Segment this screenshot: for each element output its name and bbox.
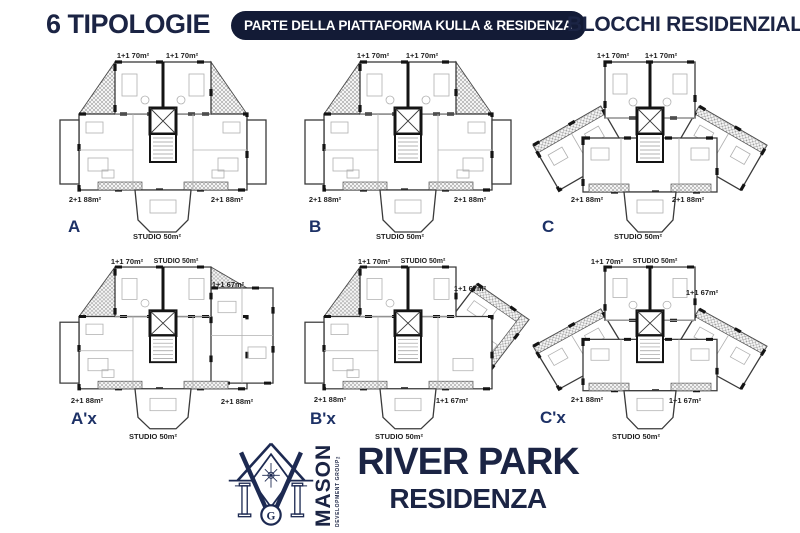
mason-logo-icon: G <box>227 440 315 530</box>
plan-cell-bx: 1+1 70m² STUDIO 50m² 1+1 67m² 2+1 88m² 1… <box>283 248 533 454</box>
unit-label-top-left: 1+1 70m² <box>357 51 389 60</box>
unit-label-bottom-left: 2+1 88m² <box>69 195 101 204</box>
unit-label-top-studio: STUDIO 50m² <box>401 258 446 265</box>
unit-label-bottom-right: 1+1 67m² <box>669 396 701 405</box>
plan-cell-ax: 1+1 70m² STUDIO 50m² 1+1 67m² 2+1 88m² 2… <box>38 248 288 454</box>
unit-label-top-left: 1+1 70m² <box>591 257 623 266</box>
unit-label-top-left: 1+1 70m² <box>111 257 143 266</box>
unit-label-top-studio: STUDIO 50m² <box>633 258 678 265</box>
unit-label-side-right: 1+1 67m² <box>212 280 244 289</box>
plan-cell-c: 1+1 70m² 1+1 70m² 2+1 88m² 2+1 88m² C ST… <box>525 42 775 248</box>
project-block: RIVER PARK RESIDENZA <box>352 443 584 513</box>
unit-label-bottom-left: 2+1 88m² <box>571 195 603 204</box>
page-title-right: BLOCCHI RESIDENZIALI <box>567 13 800 37</box>
plan-cell-a: 1+1 70m² 1+1 70m² 2+1 88m² 2+1 88m² A ST… <box>38 42 288 248</box>
unit-label-top-right: 1+1 70m² <box>406 51 438 60</box>
unit-label-studio: STUDIO 50m² <box>375 432 423 441</box>
unit-label-bottom-left: 2+1 88m² <box>71 396 103 405</box>
plan-letter: B'x <box>310 409 336 429</box>
unit-label-bottom-left: 2+1 88m² <box>314 395 346 404</box>
unit-label-bottom-right: 1+1 67m² <box>436 396 468 405</box>
logo-monogram: G <box>267 510 276 522</box>
subtitle-pill: PARTE DELLA PIATTAFORMA KULLA & RESIDENZ… <box>231 11 586 40</box>
unit-label-studio: STUDIO 50m² <box>129 432 177 441</box>
unit-label-side-right: 1+1 67m² <box>686 288 718 297</box>
unit-label-top-left: 1+1 70m² <box>117 51 149 60</box>
plan-cell-b: 1+1 70m² 1+1 70m² 2+1 88m² 2+1 88m² B ST… <box>283 42 533 248</box>
unit-label-bottom-right: 2+1 88m² <box>454 195 486 204</box>
project-subtitle: RESIDENZA <box>352 485 584 513</box>
unit-label-top-left: 1+1 70m² <box>597 51 629 60</box>
plan-letter: B <box>309 217 321 237</box>
unit-label-bottom-left: 2+1 88m² <box>571 395 603 404</box>
page-title-left: 6 TIPOLOGIE <box>46 9 210 40</box>
floorplan-c-drawing <box>525 42 775 248</box>
unit-label-side-right: 1+1 67m² <box>454 284 486 293</box>
plan-letter: A'x <box>71 409 97 429</box>
brand-block: MASON DEVELOPMENT GROUP™ <box>313 441 342 527</box>
plan-letter: C <box>542 217 554 237</box>
brand-name: MASON <box>313 441 334 527</box>
unit-label-bottom-right: 2+1 88m² <box>221 397 253 406</box>
unit-label-studio: STUDIO 50m² <box>376 232 424 241</box>
plan-cell-cx: 1+1 70m² STUDIO 50m² 1+1 67m² 2+1 88m² 1… <box>525 248 775 454</box>
unit-label-studio: STUDIO 50m² <box>133 232 181 241</box>
unit-label-top-studio: STUDIO 50m² <box>154 258 199 265</box>
unit-label-bottom-right: 2+1 88m² <box>211 195 243 204</box>
brand-subtitle: DEVELOPMENT GROUP™ <box>334 441 342 527</box>
unit-label-top-right: 1+1 70m² <box>166 51 198 60</box>
unit-label-top-left: 1+1 70m² <box>358 257 390 266</box>
unit-label-studio: STUDIO 50m² <box>614 232 662 241</box>
unit-label-bottom-left: 2+1 88m² <box>309 195 341 204</box>
project-title: RIVER PARK <box>352 443 584 481</box>
typologies-poster: 6 TIPOLOGIE PARTE DELLA PIATTAFORMA KULL… <box>0 0 800 533</box>
unit-label-bottom-right: 2+1 88m² <box>672 195 704 204</box>
unit-label-studio: STUDIO 50m² <box>612 432 660 441</box>
unit-label-top-right: 1+1 70m² <box>645 51 677 60</box>
plan-letter: A <box>68 217 80 237</box>
plan-letter: C'x <box>540 408 566 428</box>
